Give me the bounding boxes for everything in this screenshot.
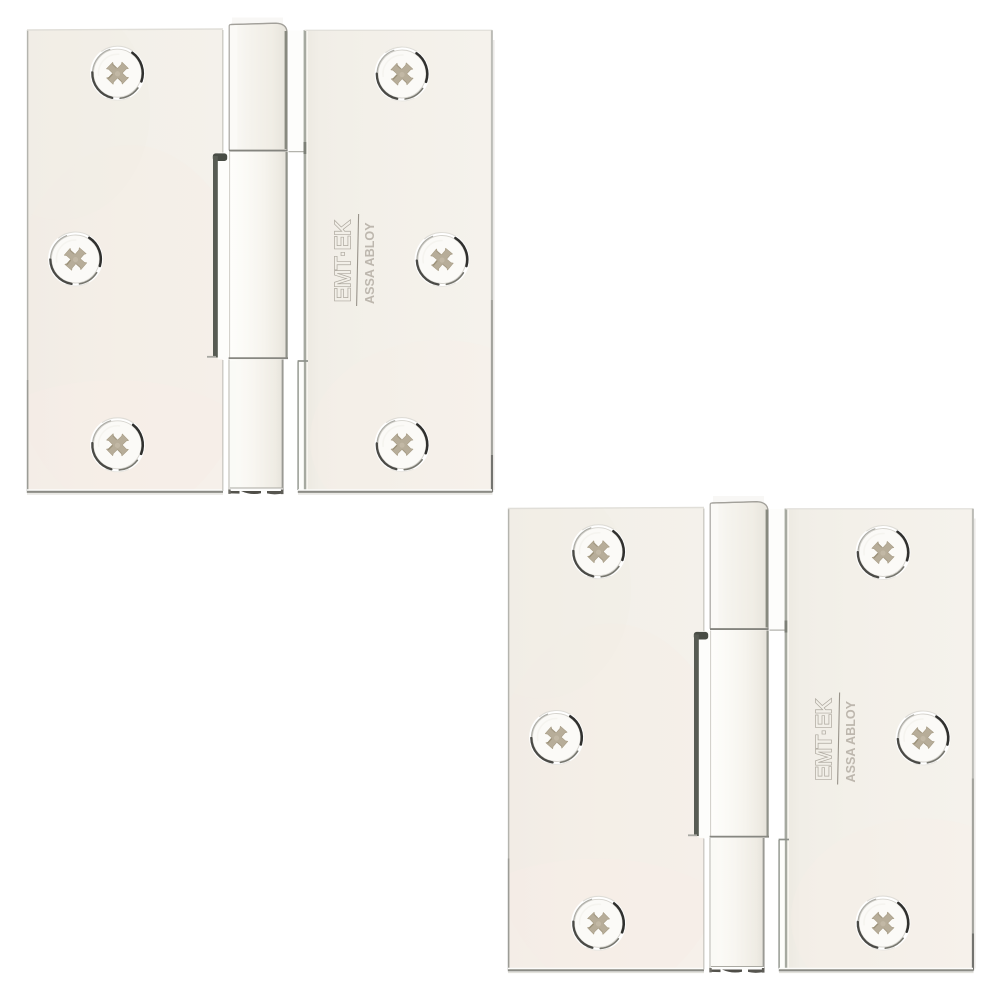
svg-text:ASSA ABLOY: ASSA ABLOY bbox=[844, 700, 858, 782]
svg-text:EMT·EK: EMT·EK bbox=[330, 219, 356, 303]
svg-text:ASSA ABLOY: ASSA ABLOY bbox=[363, 222, 377, 304]
svg-text:EMT·EK: EMT·EK bbox=[811, 697, 837, 781]
